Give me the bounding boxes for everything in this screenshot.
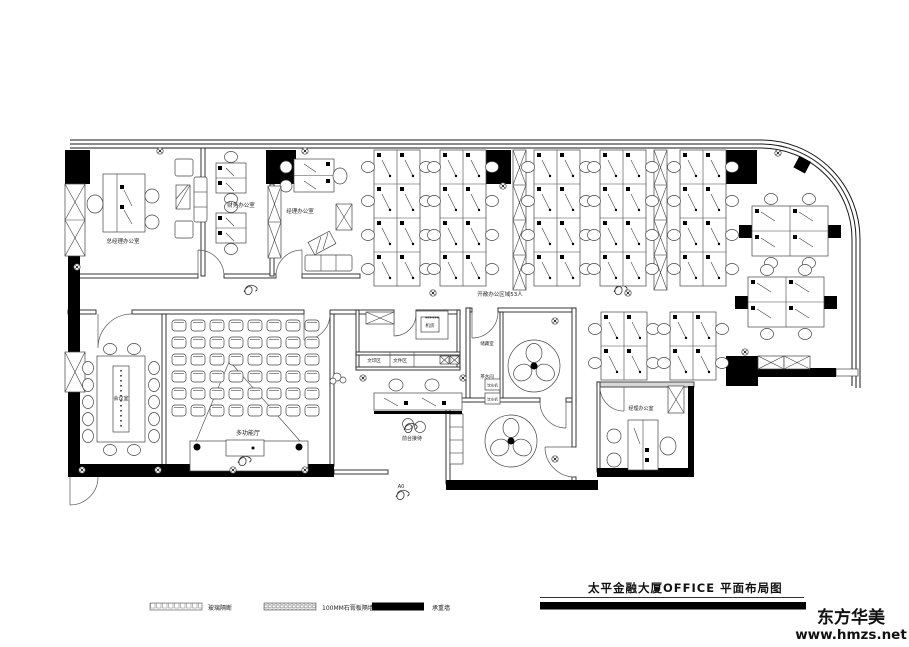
label-water-1: 饮水机 xyxy=(487,383,498,388)
legend-label-bearing: 承重墙 xyxy=(432,604,450,612)
label-water-2: 饮水机 xyxy=(487,397,498,402)
label-server-room: 机房 xyxy=(426,322,435,329)
legend-item-gypsum: 100MM石膏板隔墙 xyxy=(264,603,374,612)
workstation-block xyxy=(522,150,593,286)
label-multi-hall: 多功能厅 xyxy=(236,429,260,437)
label-manager-office-top: 经理办公室 xyxy=(286,207,314,215)
label-open-office: 开敞办公区域53人 xyxy=(477,290,523,298)
survey-marker xyxy=(625,290,631,296)
label-finance-office: 财务办公室 xyxy=(227,201,255,209)
legend: 玻璃隔断 100MM石膏板隔墙 承重墙 xyxy=(150,603,450,613)
workstation-block xyxy=(588,150,659,286)
label-print-area: 文印区 xyxy=(367,357,381,364)
legend-label-glass: 玻璃隔断 xyxy=(208,604,232,612)
workstation-cluster xyxy=(739,194,841,269)
workstation-block xyxy=(362,150,433,286)
round-table xyxy=(508,340,560,392)
survey-marker xyxy=(74,264,80,270)
survey-marker xyxy=(460,375,466,381)
label-pantry: 茶水间 xyxy=(480,373,494,380)
floor-plan-page: 总经理办公室 财务办公室 经理办公室 开敞办公区域53人 会议室 多功能厅 前台… xyxy=(0,0,909,647)
gm-office-furniture xyxy=(87,159,207,238)
title-block: 太平金融大厦OFFICE 平面布局图 xyxy=(540,581,806,610)
label-gm-office: 总经理办公室 xyxy=(106,237,140,245)
watermark-brand: 东方华美 xyxy=(817,607,886,628)
survey-marker xyxy=(552,318,558,324)
plan-title: 太平金融大厦OFFICE 平面布局图 xyxy=(587,581,783,595)
floor-plan-canvas: 总经理办公室 财务办公室 经理办公室 开敞办公区域53人 会议室 多功能厅 前台… xyxy=(0,0,909,647)
label-reception: 前台接待 xyxy=(402,435,422,442)
round-table xyxy=(485,415,537,467)
survey-marker xyxy=(430,290,436,296)
workstation-block xyxy=(428,150,499,286)
legend-label-gypsum: 100MM石膏板隔墙 xyxy=(322,604,374,612)
survey-marker xyxy=(775,150,781,156)
open-office-workstations xyxy=(362,150,842,380)
workstation-block xyxy=(668,150,739,286)
watermark: 东方华美 www.hmzs.net xyxy=(795,607,907,643)
survey-marker xyxy=(360,375,366,381)
label-manager-office-right: 经理办公室 xyxy=(628,405,653,412)
survey-marker xyxy=(552,456,558,462)
survey-marker xyxy=(230,467,236,473)
legend-item-bearing: 承重墙 xyxy=(372,603,450,613)
survey-marker xyxy=(157,148,163,154)
manager-right-office-furniture xyxy=(607,420,676,470)
server-stars: ****** xyxy=(425,316,440,322)
survey-marker xyxy=(500,183,506,189)
survey-marker xyxy=(742,349,748,355)
survey-marker xyxy=(302,148,308,154)
workstation-block xyxy=(658,312,729,380)
label-storage: 储藏室 xyxy=(480,340,494,347)
workstation-block xyxy=(589,312,660,380)
watermark-url: www.hmzs.net xyxy=(795,627,907,643)
survey-marker xyxy=(79,467,85,473)
workstation-cluster xyxy=(735,265,837,340)
survey-marker xyxy=(302,467,308,473)
survey-marker xyxy=(155,467,161,473)
label-meeting-room: 会议室 xyxy=(113,395,128,402)
legend-item-glass: 玻璃隔断 xyxy=(150,603,232,612)
label-file-area: 文件区 xyxy=(393,357,407,364)
hall-seats xyxy=(172,320,319,416)
label-entrance: A0 xyxy=(398,484,405,490)
